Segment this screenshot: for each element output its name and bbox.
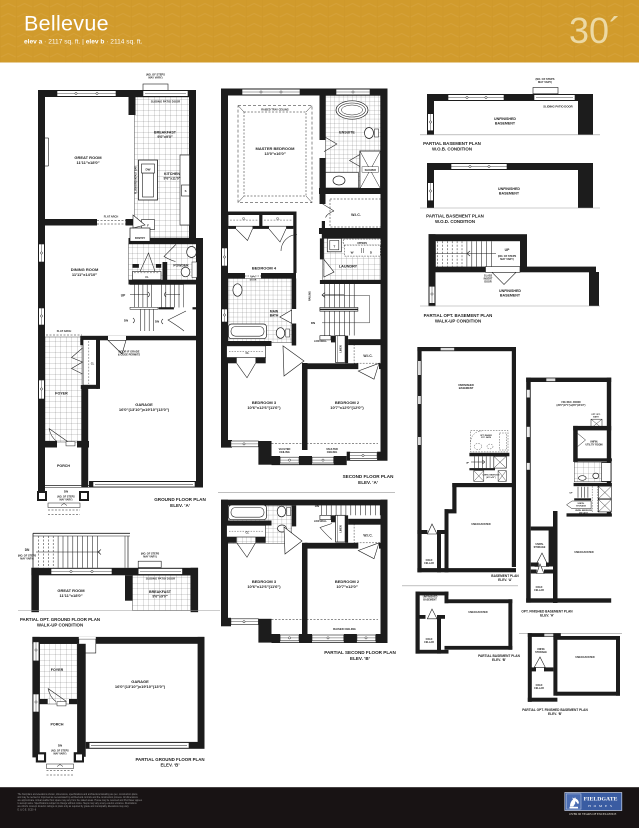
svg-text:DN: DN	[311, 321, 315, 325]
svg-text:ELEV. ‘B’: ELEV. ‘B’	[492, 658, 506, 662]
svg-text:DN: DN	[25, 548, 30, 552]
svg-text:DN: DN	[155, 320, 159, 324]
svg-text:ELECTRIC FIREPLACE: ELECTRIC FIREPLACE	[38, 139, 41, 165]
svg-text:POWDER: POWDER	[173, 264, 189, 268]
svg-text:(4′6″x4′0″): (4′6″x4′0″)	[486, 476, 496, 479]
svg-text:W.O.B. CONDITION: W.O.B. CONDITION	[432, 147, 472, 152]
svg-text:OVER 60 YEARS OF EXCELLENCE: OVER 60 YEARS OF EXCELLENCE	[569, 812, 616, 816]
svg-text:LOW WALL: LOW WALL	[35, 730, 38, 743]
svg-text:UNEXCAVATED: UNEXCAVATED	[471, 522, 490, 526]
svg-text:11′11″x18′0″: 11′11″x18′0″	[59, 593, 82, 598]
svg-text:FLAT ARCH: FLAT ARCH	[57, 329, 72, 333]
svg-text:FOYER: FOYER	[51, 668, 64, 672]
svg-text:9′6″x9′0″: 9′6″x9′0″	[152, 594, 167, 598]
svg-text:UTILITY ROOM: UTILITY ROOM	[585, 444, 602, 447]
svg-text:(26′0″(17′1″)x(8′8″(16′10″): (26′0″(17′1″)x(8′8″(16′10″)	[557, 404, 586, 407]
svg-text:MAY VARY): MAY VARY)	[60, 498, 73, 501]
svg-text:BASEMENT: BASEMENT	[500, 293, 521, 297]
svg-text:DW: DW	[146, 168, 151, 172]
svg-text:W.O.D. CONDITION: W.O.D. CONDITION	[435, 219, 475, 224]
svg-text:3 PC. BATH: 3 PC. BATH	[481, 436, 492, 439]
svg-text:ELEV. ‘B’: ELEV. ‘B’	[160, 763, 179, 768]
svg-text:PANTRY: PANTRY	[135, 236, 146, 240]
svg-text:F: F	[147, 224, 149, 228]
svg-text:WALL MOUNTED: WALL MOUNTED	[41, 142, 44, 161]
svg-text:KITCHEN: KITCHEN	[164, 172, 180, 176]
svg-text:W.I.C.: W.I.C.	[351, 213, 361, 217]
svg-text:CL: CL	[276, 216, 280, 220]
svg-text:UPPERS: UPPERS	[357, 242, 367, 245]
svg-text:16′0″(13′10″)x19′10″(13′0″): 16′0″(13′10″)x19′10″(13′0″)	[119, 407, 170, 412]
svg-text:BASEMENT: BASEMENT	[495, 121, 516, 125]
svg-text:ELEV. ‘A’: ELEV. ‘A’	[358, 480, 378, 485]
svg-text:UP: UP	[466, 463, 470, 465]
svg-text:CL: CL	[91, 362, 95, 366]
svg-text:PARTIAL OPT. GROUND FLOOR PLAN: PARTIAL OPT. GROUND FLOOR PLAN	[20, 617, 100, 622]
svg-text:W.I.C.: W.I.C.	[363, 534, 372, 538]
svg-text:9′6″x11′0″: 9′6″x11′0″	[164, 176, 181, 180]
svg-text:LINEN: LINEN	[339, 525, 342, 532]
svg-text:LAUNDRY: LAUNDRY	[339, 265, 358, 269]
svg-text:BATH: BATH	[270, 313, 279, 317]
svg-text:WALK-UP CONDITION: WALK-UP CONDITION	[37, 623, 83, 628]
svg-text:GROUND FLOOR PLAN: GROUND FLOOR PLAN	[154, 497, 206, 502]
svg-text:CL: CL	[145, 275, 149, 279]
svg-text:UNFINISHED: UNFINISHED	[499, 289, 521, 293]
svg-text:10′7″x12′0″: 10′7″x12′0″	[336, 584, 357, 589]
svg-text:MAY VARY): MAY VARY)	[54, 752, 67, 755]
svg-text:CELLAR: CELLAR	[424, 641, 434, 644]
svg-text:CELLAR: CELLAR	[534, 589, 544, 592]
svg-text:RAILING: RAILING	[309, 291, 312, 301]
svg-text:11′11″x14′10″: 11′11″x14′10″	[72, 272, 97, 277]
svg-text:PARTIAL OPT. BASEMENT PLAN: PARTIAL OPT. BASEMENT PLAN	[424, 313, 493, 318]
svg-text:11′11″x18′0″: 11′11″x18′0″	[76, 160, 99, 165]
svg-text:ENSUITE: ENSUITE	[339, 131, 355, 135]
svg-text:UP: UP	[505, 248, 510, 252]
svg-text:ELEV. ‘A’: ELEV. ‘A’	[498, 578, 512, 582]
svg-text:10′6″x12′6″(11′6″): 10′6″x12′6″(11′6″)	[247, 584, 281, 589]
svg-text:LOW WALL: LOW WALL	[314, 340, 328, 343]
svg-text:to accept same. Specifications: to accept same. Specifications subject t…	[18, 802, 138, 805]
svg-text:UP: UP	[569, 493, 573, 495]
svg-text:UNEXCAVATED: UNEXCAVATED	[468, 610, 487, 614]
svg-text:RAISED CEILING: RAISED CEILING	[333, 627, 356, 631]
svg-text:STORAGE: STORAGE	[534, 546, 546, 549]
svg-text:PARTIAL SECOND FLOOR PLAN: PARTIAL SECOND FLOOR PLAN	[324, 650, 396, 655]
svg-text:H O M E S: H O M E S	[588, 804, 613, 808]
svg-text:Bellevue: Bellevue	[24, 12, 109, 36]
svg-text:16′0″(13′10″)x19′10″(13′0″): 16′0″(13′10″)x19′10″(13′0″)	[115, 684, 166, 689]
svg-text:CELLAR: CELLAR	[534, 687, 544, 690]
svg-text:W.I.C.: W.I.C.	[363, 354, 372, 358]
svg-text:CELLAR: CELLAR	[424, 562, 434, 565]
svg-text:MAY VARY): MAY VARY)	[538, 80, 552, 84]
svg-text:W: W	[351, 251, 354, 255]
svg-text:UNFINISHED: UNFINISHED	[498, 187, 520, 191]
svg-text:FLUSH BREAKFAST BAR: FLUSH BREAKFAST BAR	[135, 166, 138, 194]
svg-text:CL: CL	[246, 351, 250, 355]
svg-text:DOOR: DOOR	[484, 281, 491, 284]
svg-text:UNEXCAVATED: UNEXCAVATED	[574, 550, 593, 554]
svg-text:FIELDGATE: FIELDGATE	[584, 796, 618, 802]
svg-text:FOYER: FOYER	[55, 392, 68, 396]
svg-text:PORCH: PORCH	[57, 464, 70, 468]
svg-text:PARTIAL GROUND FLOOR PLAN: PARTIAL GROUND FLOOR PLAN	[135, 757, 204, 762]
svg-text:10′6″x12′6″(11′6″): 10′6″x12′6″(11′6″)	[247, 405, 281, 410]
svg-text:CL: CL	[242, 216, 246, 220]
svg-text:PORCH: PORCH	[51, 723, 64, 727]
svg-text:WALK-UP CONDITION: WALK-UP CONDITION	[435, 319, 481, 324]
svg-text:BASEMENT: BASEMENT	[459, 386, 474, 390]
svg-text:are approximate. Actual usable: are approximate. Actual usable floor spa…	[18, 799, 143, 802]
svg-text:BASEMENT: BASEMENT	[423, 599, 437, 602]
svg-text:UNEXCAVATED: UNEXCAVATED	[575, 655, 594, 659]
svg-text:MAY VARY): MAY VARY)	[149, 76, 163, 80]
svg-text:DN: DN	[58, 744, 62, 748]
svg-text:OPT.: OPT.	[251, 276, 256, 278]
svg-text:BREAKFAST: BREAKFAST	[154, 131, 177, 135]
svg-text:CL: CL	[246, 531, 250, 535]
svg-text:ELEV. ‘A’: ELEV. ‘A’	[540, 614, 554, 618]
svg-text:30´: 30´	[569, 10, 621, 51]
svg-text:and may be revised or improved: and may be revised or improved as necess…	[18, 796, 139, 799]
svg-text:DN: DN	[124, 319, 128, 323]
svg-text:MAY VARY): MAY VARY)	[500, 258, 514, 261]
svg-text:DN: DN	[64, 490, 68, 494]
svg-text:10′7″x12′0″(12′0″): 10′7″x12′0″(12′0″)	[330, 405, 364, 410]
svg-text:DN: DN	[315, 504, 319, 508]
svg-text:PARTIAL BASEMENT PLAN: PARTIAL BASEMENT PLAN	[426, 214, 484, 219]
svg-text:9′0″x9′0″: 9′0″x9′0″	[157, 135, 172, 139]
svg-text:SLIDING PATIO DOOR: SLIDING PATIO DOOR	[543, 105, 572, 109]
svg-text:ELEV. ‘B’: ELEV. ‘B’	[548, 712, 562, 716]
svg-text:PARTIAL BASEMENT PLAN: PARTIAL BASEMENT PLAN	[423, 141, 481, 146]
svg-text:MAY VARY): MAY VARY)	[143, 556, 157, 559]
svg-text:BREAKFAST: BREAKFAST	[149, 590, 172, 594]
svg-text:BASEMENT: BASEMENT	[499, 191, 520, 195]
svg-text:CEILING: CEILING	[279, 450, 290, 454]
svg-text:BEDROOM 4: BEDROOM 4	[252, 266, 277, 271]
svg-text:T: T	[333, 245, 335, 249]
svg-text:E. & O.E. SC30 -6: E. & O.E. SC30 -6	[18, 809, 37, 811]
svg-text:The floorplans and elevations: The floorplans and elevations shown, dim…	[18, 793, 139, 796]
svg-text:MAY VARY): MAY VARY)	[20, 558, 34, 561]
svg-text:SECOND FLOOR PLAN: SECOND FLOOR PLAN	[343, 474, 394, 479]
svg-text:RAISED TRAY CEILING: RAISED TRAY CEILING	[261, 109, 289, 112]
svg-text:BATH: BATH	[593, 416, 599, 419]
svg-text:SHOWER: SHOWER	[365, 169, 376, 172]
svg-text:LINEN: LINEN	[339, 345, 342, 352]
svg-text:ELEV. ‘B’: ELEV. ‘B’	[350, 656, 370, 661]
svg-text:STORAGE: STORAGE	[535, 651, 547, 654]
svg-text:CEILING: CEILING	[327, 450, 338, 454]
svg-text:FLAT ARCH: FLAT ARCH	[104, 215, 119, 219]
svg-text:ELEV. ‘A’: ELEV. ‘A’	[170, 503, 190, 508]
svg-text:& CODE PERMITS: & CODE PERMITS	[118, 353, 141, 357]
svg-text:are Artist’s concept. Exterior: are Artist’s concept. Exterior railings …	[18, 805, 130, 808]
svg-text:elev a · 2117 sq. ft. | el: elev a · 2117 sq. ft. | elev b · 2114 sq…	[24, 39, 143, 46]
svg-text:13′0″x16′0″: 13′0″x16′0″	[264, 151, 285, 156]
svg-text:LOW WALL: LOW WALL	[314, 520, 328, 523]
svg-text:STORAGE: STORAGE	[576, 505, 587, 508]
svg-text:S: S	[185, 189, 187, 193]
svg-text:UNFINISHED: UNFINISHED	[494, 117, 516, 121]
